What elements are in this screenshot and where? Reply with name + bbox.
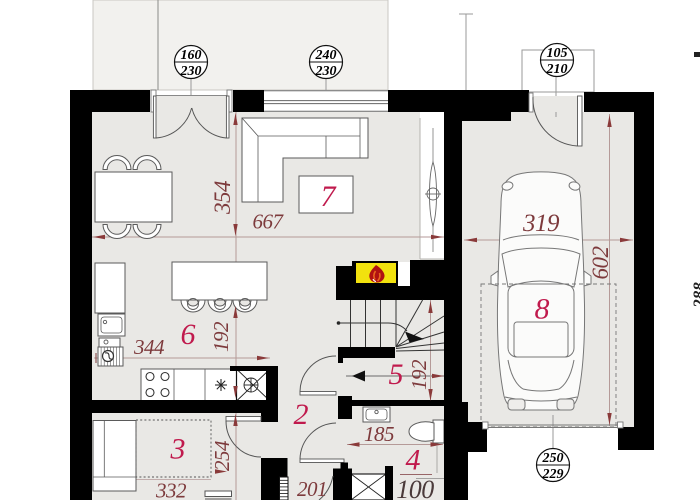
- svg-text:344: 344: [133, 335, 165, 359]
- svg-text:5: 5: [389, 358, 404, 391]
- svg-text:319: 319: [522, 210, 560, 237]
- svg-text:8: 8: [535, 293, 550, 326]
- svg-text:192: 192: [407, 359, 431, 390]
- svg-text:250: 250: [542, 451, 564, 466]
- svg-text:192: 192: [209, 321, 233, 352]
- svg-text:210: 210: [546, 62, 568, 77]
- svg-text:4: 4: [406, 444, 421, 477]
- svg-text:201: 201: [297, 477, 327, 500]
- svg-text:185: 185: [364, 422, 394, 446]
- svg-text:7: 7: [321, 180, 338, 213]
- svg-text:160: 160: [181, 48, 202, 63]
- svg-text:354: 354: [210, 181, 235, 215]
- svg-text:254: 254: [210, 440, 234, 471]
- svg-text:3: 3: [170, 433, 186, 466]
- svg-text:6: 6: [181, 318, 196, 351]
- svg-text:100: 100: [396, 475, 434, 500]
- svg-text:230: 230: [180, 64, 202, 79]
- svg-text:240: 240: [315, 48, 337, 63]
- svg-text:105: 105: [547, 46, 568, 61]
- svg-text:667: 667: [253, 210, 285, 234]
- svg-text:2: 2: [294, 398, 309, 431]
- svg-text:229: 229: [542, 467, 564, 482]
- svg-text:602: 602: [588, 247, 613, 280]
- svg-text:230: 230: [315, 64, 337, 79]
- svg-text:288: 288: [690, 282, 700, 309]
- svg-text:332: 332: [155, 479, 187, 500]
